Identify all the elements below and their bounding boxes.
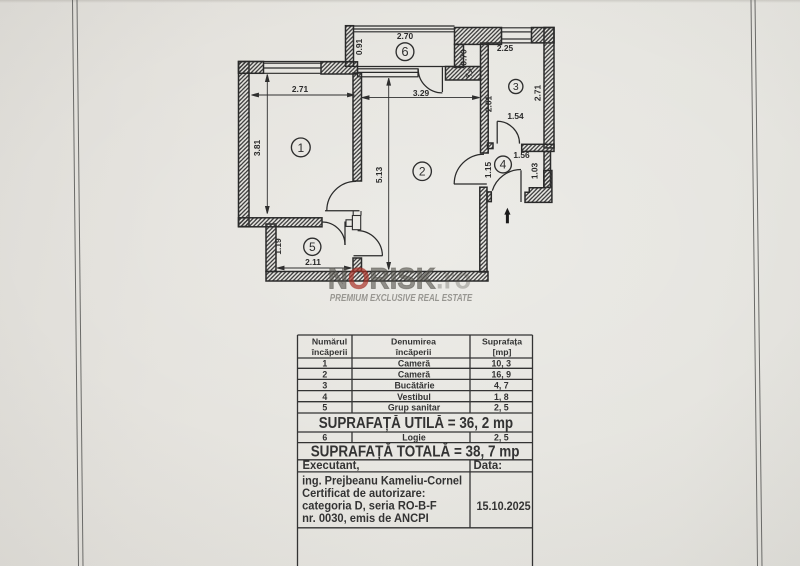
svg-text:Numărul: Numărul (312, 337, 347, 347)
svg-text:1.15: 1.15 (483, 162, 493, 179)
svg-text:15.10.2025: 15.10.2025 (477, 499, 531, 513)
svg-text:2: 2 (322, 370, 327, 380)
svg-text:6: 6 (322, 432, 327, 442)
svg-text:2.25: 2.25 (497, 43, 514, 53)
svg-text:2.01: 2.01 (484, 96, 494, 113)
svg-text:6: 6 (401, 44, 408, 59)
svg-text:Data:: Data: (474, 458, 503, 472)
svg-text:nr. 0030, emis de ANCPI: nr. 0030, emis de ANCPI (302, 511, 429, 525)
svg-text:4, 7: 4, 7 (494, 381, 509, 391)
svg-text:3: 3 (513, 81, 519, 93)
svg-text:4: 4 (500, 158, 507, 172)
svg-text:Denumirea: Denumirea (391, 337, 436, 347)
svg-text:Bucătărie: Bucătărie (394, 381, 434, 391)
svg-text:4: 4 (322, 392, 327, 402)
svg-text:10, 3: 10, 3 (492, 358, 512, 368)
svg-text:1: 1 (322, 358, 327, 368)
svg-text:Grup sanitar: Grup sanitar (388, 403, 441, 413)
svg-text:Cameră: Cameră (398, 370, 430, 380)
svg-text:3: 3 (322, 381, 327, 391)
svg-text:Suprafața: Suprafața (482, 337, 522, 347)
svg-text:2.71: 2.71 (292, 84, 309, 94)
svg-text:0.91: 0.91 (354, 39, 364, 56)
svg-text:[mp]: [mp] (493, 347, 512, 357)
svg-text:2: 2 (419, 165, 426, 179)
svg-text:1: 1 (297, 141, 304, 155)
svg-text:NORISK.ro: NORISK.ro (328, 262, 471, 295)
svg-text:Logie: Logie (402, 432, 426, 442)
svg-text:5: 5 (322, 403, 327, 413)
svg-text:16, 9: 16, 9 (492, 370, 512, 380)
svg-text:5.13: 5.13 (374, 167, 384, 184)
svg-text:1.54: 1.54 (507, 111, 524, 121)
svg-text:0.70: 0.70 (459, 49, 469, 66)
svg-text:2.70: 2.70 (397, 31, 414, 41)
svg-text:5: 5 (309, 240, 316, 254)
svg-text:Cameră: Cameră (398, 358, 430, 368)
svg-text:1.56: 1.56 (513, 150, 530, 160)
svg-text:PREMIUM EXCLUSIVE REAL ESTATE: PREMIUM EXCLUSIVE REAL ESTATE (330, 293, 473, 304)
svg-text:2, 5: 2, 5 (494, 432, 509, 442)
svg-text:1, 8: 1, 8 (494, 392, 509, 402)
svg-text:1.03: 1.03 (530, 163, 540, 180)
svg-text:Vestibul: Vestibul (397, 392, 431, 402)
svg-text:2.71: 2.71 (533, 85, 543, 102)
svg-text:Executant,: Executant, (303, 458, 360, 472)
svg-text:2.11: 2.11 (305, 257, 321, 267)
svg-text:1.19: 1.19 (273, 238, 283, 255)
svg-text:3.81: 3.81 (252, 140, 262, 157)
svg-text:încăperii: încăperii (311, 347, 348, 357)
svg-text:SUPRAFAȚĂ UTILĂ = 36, 2 mp: SUPRAFAȚĂ UTILĂ = 36, 2 mp (319, 415, 513, 432)
svg-text:încăperii: încăperii (395, 347, 432, 357)
svg-text:2, 5: 2, 5 (494, 403, 509, 413)
svg-text:3.29: 3.29 (413, 88, 430, 98)
